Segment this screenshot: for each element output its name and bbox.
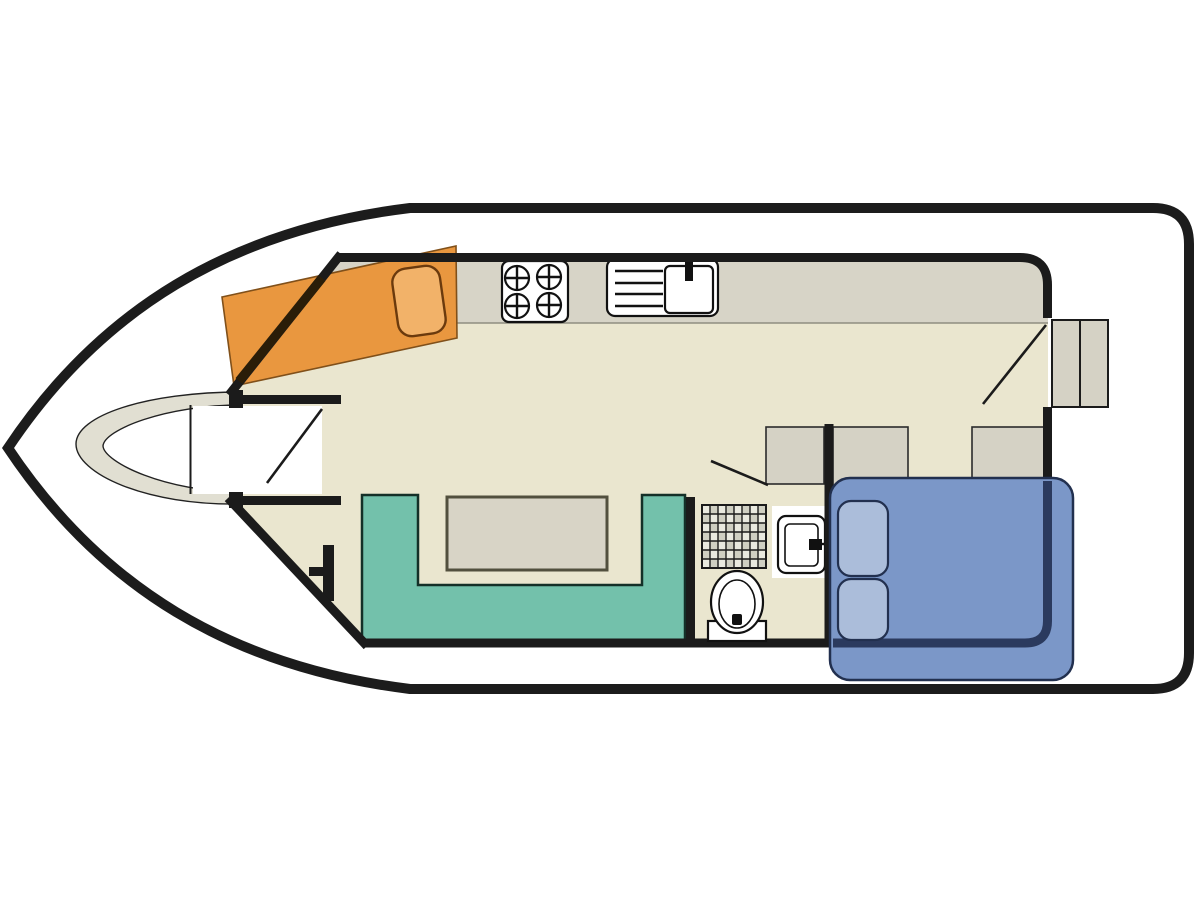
double-bed-pillow-bottom	[838, 579, 888, 640]
sink-faucet	[685, 260, 693, 281]
toilet-flush	[732, 614, 742, 625]
shower	[702, 505, 766, 568]
wall-joint-top	[229, 390, 243, 408]
single-berth-pillow	[391, 264, 448, 338]
basin-faucet-icon	[809, 539, 822, 550]
double-bed-pillow-top	[838, 501, 888, 576]
stove	[502, 261, 568, 322]
double-bed	[830, 478, 1073, 680]
dining-table	[447, 497, 607, 570]
washbasin	[772, 506, 829, 578]
stove-burner	[536, 264, 562, 290]
floorplan-canvas	[0, 0, 1200, 900]
toilet	[708, 571, 766, 641]
stove-burner	[504, 293, 530, 319]
stove-burner	[504, 265, 530, 291]
bow-entry-box	[193, 406, 322, 494]
sink	[607, 255, 718, 316]
entry-cabinet	[766, 427, 824, 484]
deck-steps	[1052, 320, 1108, 407]
houseboat-floorplan	[0, 0, 1200, 900]
wall-joint-bottom	[229, 492, 243, 508]
stove-burner	[536, 292, 562, 318]
